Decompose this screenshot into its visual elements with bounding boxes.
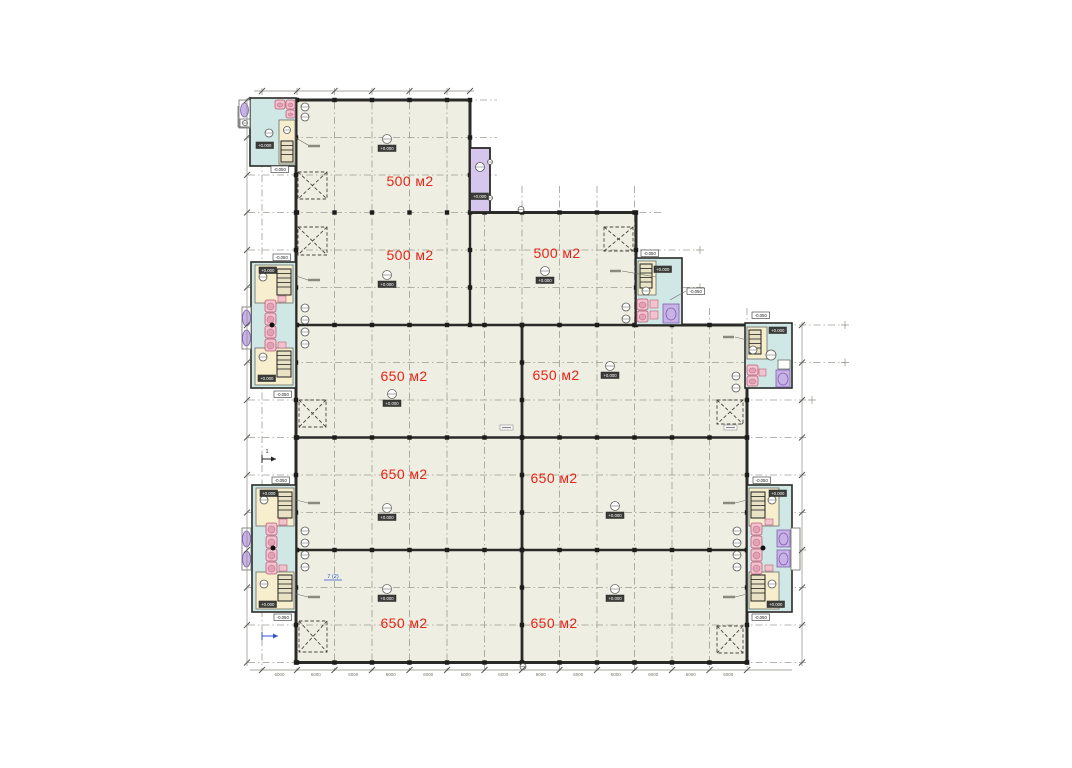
level-value: +0.000 [261,602,275,607]
toilet-bowl [267,342,274,349]
column-marker [520,323,524,327]
toilet-bowl [268,565,275,572]
unit-area-label: 650 м2 [380,615,427,631]
sink-fixture [650,300,658,308]
column-marker [520,623,524,627]
column-marker [370,98,374,102]
center-dot [271,546,276,551]
dimension-value: 6000 [274,672,285,677]
column-marker [294,210,298,214]
dimension-value: 6000 [536,672,547,677]
column-marker [670,548,674,552]
stair-ladder [277,351,291,377]
level-value: +0.000 [260,376,274,381]
level-value: -0.050 [274,167,287,172]
toilet-bowl [268,539,275,546]
toilet-bowl [268,552,275,559]
section-label: 1 [265,449,268,455]
column-marker [520,548,524,552]
core-room [470,148,490,212]
elevation-value: +0.000 [380,282,394,287]
column-marker [482,435,486,439]
toilet-bowl [749,368,756,373]
toilet-bowl [267,303,274,310]
sanitary-oval-fixture [666,308,676,320]
column-marker [332,210,336,214]
column-marker [557,660,561,664]
column-marker [407,323,411,327]
floor-plan-svg: +0.000+0.000+0.000+0.000+0.000+0.000+0.0… [0,0,1072,768]
toilet-bowl [267,329,274,336]
dimension-value: 6000 [723,672,734,677]
column-marker [595,210,599,214]
dimension-value: 6000 [461,672,472,677]
toilet-bowl [639,302,646,308]
unit-area-label: 500 м2 [386,247,433,263]
column-marker [520,435,524,439]
column-marker [294,173,298,177]
dimension-value: 6000 [611,672,622,677]
column-marker [595,435,599,439]
column-marker [745,398,749,402]
column-marker [445,660,449,664]
column-marker [294,660,298,664]
column-marker [332,98,336,102]
elevation-value: +0.000 [380,515,394,520]
column-marker [332,548,336,552]
toilet-bowl [753,565,760,572]
sink-fixture [278,296,286,302]
stair-ladder [277,269,291,295]
column-marker [294,473,298,477]
column-marker [632,435,636,439]
column-marker [407,435,411,439]
toilet-bowl [753,526,760,533]
column-marker [520,360,524,364]
level-value: -0.050 [756,478,769,483]
column-marker [407,98,411,102]
blue-arrow-head [273,634,278,639]
column-marker [632,660,636,664]
column-marker [445,548,449,552]
column-marker [468,135,472,139]
unit-area-label: 650 м2 [530,615,577,631]
column-marker [370,548,374,552]
column-marker [445,323,449,327]
column-marker [445,98,449,102]
column-marker [407,660,411,664]
elevation-value: +0.000 [380,146,394,151]
level-value: +0.000 [769,602,783,607]
column-marker [332,323,336,327]
column-marker [745,660,749,664]
level-value: +0.000 [771,328,785,333]
column-marker [707,548,711,552]
elevation-value: +0.000 [380,596,394,601]
column-marker [520,585,524,589]
sanitary-oval-fixture [243,551,251,567]
column-marker [482,660,486,664]
column-marker [707,435,711,439]
column-marker [557,210,561,214]
column-marker [670,660,674,664]
column-marker [595,323,599,327]
level-value: -0.050 [276,255,289,260]
level-value: +0.000 [656,267,670,272]
unit-area-label: 650 м2 [380,466,427,482]
column-marker [634,248,638,252]
column-marker [595,660,599,664]
elevation-value: +0.000 [538,278,552,283]
column-marker [745,623,749,627]
dimension-value: 6000 [386,672,397,677]
column-marker [294,398,298,402]
column-marker [468,323,472,327]
toilet-bowl [277,103,283,107]
column-marker [294,435,298,439]
dimension-value: 6000 [311,672,322,677]
column-marker [557,548,561,552]
sanitary-oval-fixture [779,553,788,565]
floor-plan-canvas: +0.000+0.000+0.000+0.000+0.000+0.000+0.0… [0,0,1072,768]
sanitary-oval-fixture [778,373,788,385]
level-value: -0.050 [277,615,290,620]
column-marker [294,248,298,252]
column-marker [595,548,599,552]
stair-ladder [751,575,765,601]
column-marker [707,323,711,327]
column-marker [407,548,411,552]
column-marker [294,623,298,627]
level-value: +0.000 [771,491,785,496]
column-marker [370,660,374,664]
dimension-value: 6000 [498,672,509,677]
toilet-bowl [639,314,646,320]
dimension-value: 6000 [423,672,434,677]
dimension-value: 6000 [648,672,659,677]
column-marker [557,435,561,439]
column-marker [370,210,374,214]
stair-ladder [278,492,292,518]
core-room [791,528,800,570]
column-marker [745,473,749,477]
center-dot [270,323,275,328]
unit-area-label: 650 м2 [380,368,427,384]
level-value: +0.000 [473,194,487,199]
dimension-value: 6000 [573,672,584,677]
stair-ladder [281,141,293,162]
elevation-value: +0.000 [608,596,622,601]
sink-fixture [759,369,766,376]
level-value: -0.050 [277,392,290,397]
unit-area-label: 650 м2 [530,470,577,486]
sink-fixture [278,342,286,348]
column-marker [520,473,524,477]
sink-fixture [765,565,773,571]
column-marker [707,660,711,664]
toilet-bowl [268,526,275,533]
toilet-bowl [749,379,756,384]
column-marker [520,398,524,402]
sanitary-oval-fixture [779,533,788,545]
column-marker [482,548,486,552]
center-dot [761,546,766,551]
column-marker [482,323,486,327]
column-marker [468,98,472,102]
column-marker [632,548,636,552]
unit-area-label: 500 м2 [533,245,580,261]
unit-area-label: 650 м2 [532,367,579,383]
column-marker [670,435,674,439]
sink-fixture [650,311,658,319]
sink-fixture [279,519,287,525]
level-value: +0.000 [258,143,272,148]
sanitary-oval-fixture [243,310,251,326]
column-marker [445,435,449,439]
level-value: -0.050 [690,289,703,294]
toilet-bowl [288,113,293,116]
toilet-bowl [753,539,760,546]
column-marker [370,323,374,327]
stair-ladder [751,492,765,518]
level-value: -0.050 [755,313,768,318]
column-marker [370,435,374,439]
toilet-bowl [267,316,274,323]
sink-fixture [279,565,287,571]
sanitary-oval-fixture [243,330,251,346]
level-value: -0.050 [644,251,657,256]
column-marker [332,660,336,664]
column-marker [407,210,411,214]
column-marker [634,210,638,214]
elevation-value: +0.000 [603,373,617,378]
level-value: +0.000 [262,491,276,496]
section-arrow-head [271,457,276,462]
dimension-value: 6000 [686,672,697,677]
column-marker [557,323,561,327]
stair-ladder [278,575,292,601]
column-marker [520,510,524,514]
dimension-value: 6000 [348,672,359,677]
level-value: -0.050 [275,478,288,483]
toilet-bowl [288,103,293,107]
level-value: +0.000 [261,268,275,273]
blue-reference-note: 7 (2) [327,574,338,580]
elevation-value: +0.000 [608,513,622,518]
elevation-value: +0.000 [385,401,399,406]
column-marker [468,248,472,252]
unit-area-label: 500 м2 [386,173,433,189]
column-marker [332,435,336,439]
sanitary-oval-fixture [243,531,251,547]
column-marker [468,285,472,289]
toilet-bowl [753,552,760,559]
sink-fixture [765,519,773,525]
column-marker [745,435,749,439]
core-room [778,360,790,369]
column-marker [445,210,449,214]
level-value: -0.050 [755,615,768,620]
